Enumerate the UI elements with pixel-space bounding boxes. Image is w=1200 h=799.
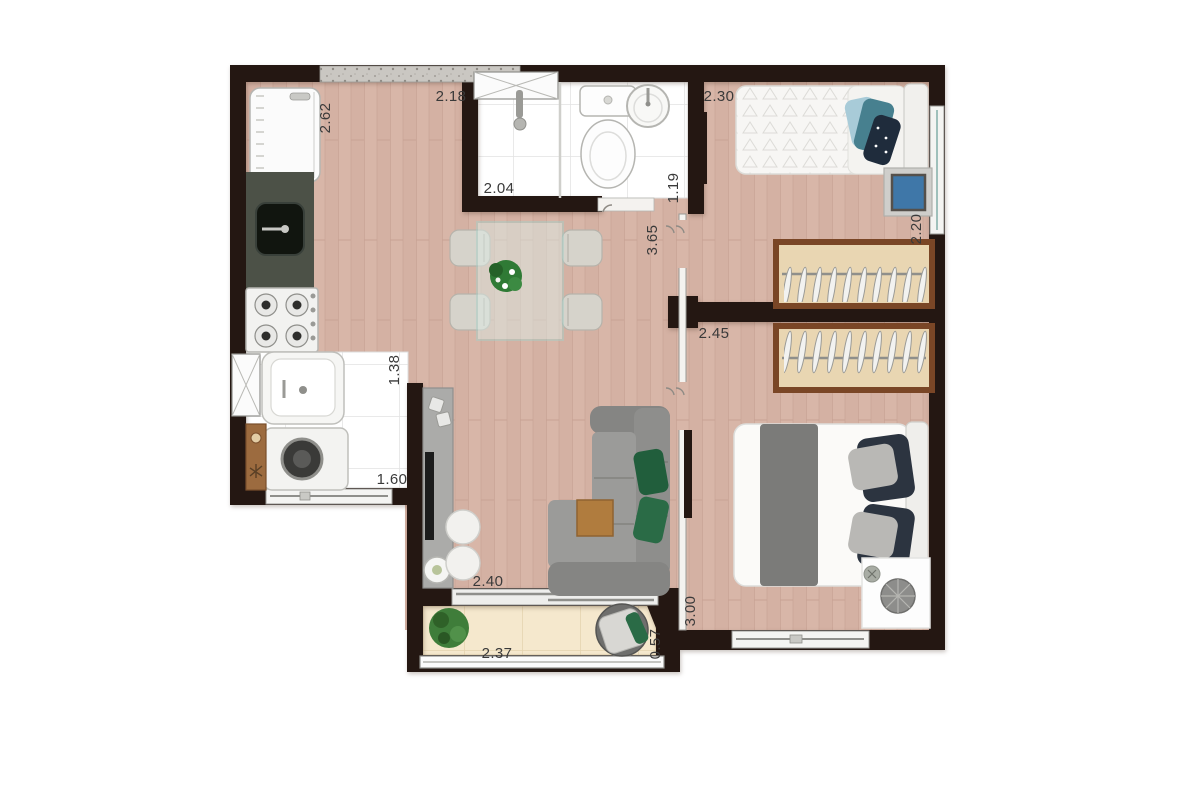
- balcony-plant-icon: [429, 608, 469, 648]
- dim-bathroom-length: 2.04: [484, 180, 515, 197]
- wardrobe-bedroom2-icon: [776, 326, 932, 390]
- bed-runner: [760, 424, 818, 586]
- dim-bedroom2-width: 2.45: [699, 325, 730, 342]
- washbasin-icon: [627, 85, 669, 127]
- dim-balcony-width: 2.37: [482, 645, 513, 662]
- bedroom2-rug: [862, 558, 930, 628]
- dim-living-width: 2.40: [473, 573, 504, 590]
- wall-bath-south: [462, 196, 602, 212]
- laundry-south-window: [266, 489, 392, 504]
- dim-bedroom1-depth: 2.20: [908, 214, 925, 245]
- pillow-gray-icon: [847, 510, 900, 559]
- laundry-shelf: [246, 424, 266, 490]
- dim-balcony-depth: 0.57: [647, 629, 664, 660]
- dim-kitchen-width: 2.18: [436, 88, 467, 105]
- single-bed-icon: [736, 84, 928, 176]
- door-leaf-bedroom2: [684, 430, 692, 518]
- kitchen-faucet-icon: [281, 225, 289, 233]
- kitchen-counter: [246, 172, 314, 290]
- wall-living-west: [407, 488, 423, 598]
- dim-laundry-depth: 1.38: [386, 355, 403, 386]
- tv-icon: [425, 452, 434, 540]
- door-opening-bedroom2: [677, 382, 688, 430]
- floor-plan-canvas: 2.62 2.18 2.04 1.19 2.30 2.20 3.65 2.45 …: [0, 0, 1200, 799]
- laundry-tub-icon: [262, 352, 344, 424]
- dim-hall-length: 3.65: [644, 225, 661, 256]
- headboard: [904, 84, 928, 176]
- dim-bedroom1-width: 2.30: [704, 88, 735, 105]
- dim-bathroom-width: 1.19: [665, 173, 682, 204]
- dim-laundry-width: 1.60: [377, 471, 408, 488]
- outside-area: [225, 505, 405, 685]
- pouf-icon: [446, 510, 480, 544]
- bedroom1-tv-unit: [884, 168, 932, 216]
- stove-icon: [246, 288, 318, 352]
- door-opening-bedroom1: [677, 220, 688, 268]
- wall-left: [230, 65, 246, 505]
- wardrobe-bedroom1-icon: [776, 242, 932, 306]
- bedroom2-window: [732, 631, 869, 648]
- fridge-icon: [250, 88, 320, 182]
- bathroom-door-threshold: [598, 198, 654, 211]
- washing-machine-icon: [264, 428, 348, 490]
- side-table-icon: [577, 500, 613, 536]
- wall-laundry-east: [407, 383, 423, 505]
- small-plant-icon: [864, 566, 880, 582]
- balcony-railing: [420, 656, 664, 668]
- dim-kitchen-depth: 2.62: [317, 103, 334, 134]
- door-leaf-bedroom1: [698, 112, 707, 184]
- pillow-gray-icon: [847, 442, 900, 491]
- dim-bedroom2-depth: 3.00: [682, 596, 699, 627]
- kitchen: [246, 88, 320, 352]
- bedroom1-tv-icon: [892, 175, 925, 210]
- laundry-window-icon: [232, 354, 260, 416]
- floor-plan-drawing: 2.62 2.18 2.04 1.19 2.30 2.20 3.65 2.45 …: [0, 0, 1200, 799]
